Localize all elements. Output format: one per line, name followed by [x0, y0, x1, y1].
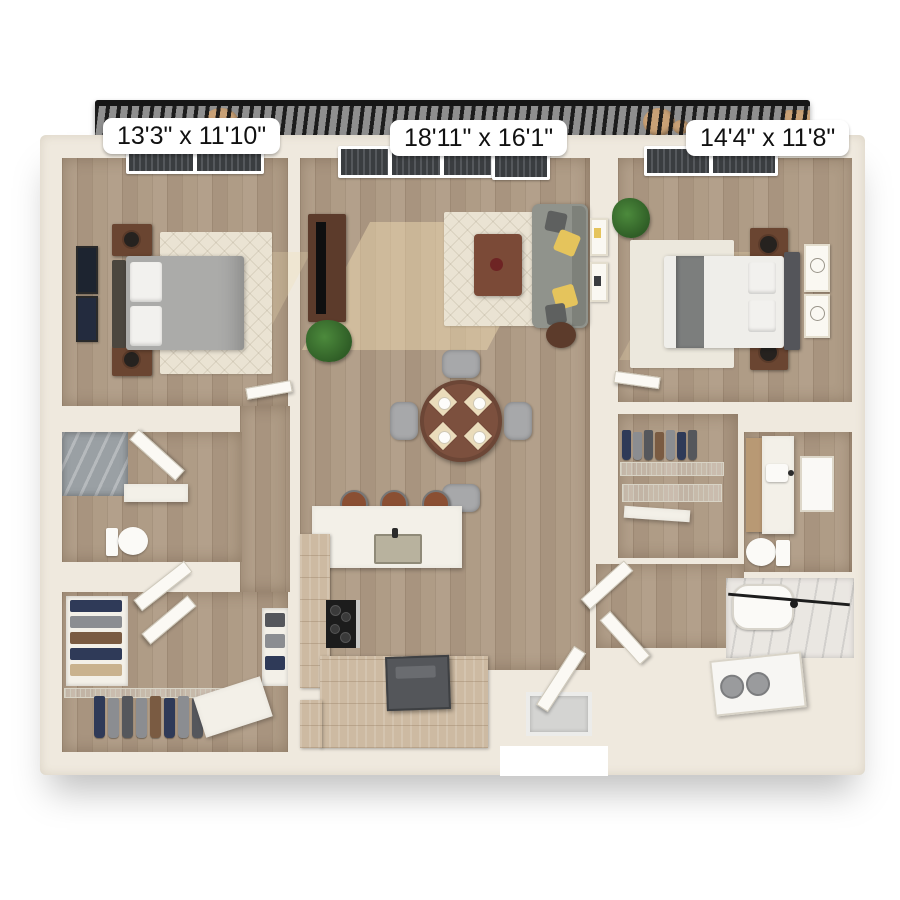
shower [62, 432, 128, 496]
wire-shelf [620, 462, 724, 476]
bathroom2-sink [766, 464, 788, 482]
side-table [546, 322, 576, 348]
wall-art-icon [590, 262, 608, 302]
plant-icon [306, 320, 352, 362]
washer-dryer [709, 651, 806, 716]
pillow [130, 262, 162, 302]
bathroom2-vanity-cabinet [746, 438, 762, 532]
wall-art-icon [76, 246, 98, 294]
wall-art-icon [804, 244, 830, 292]
floor-hall-1 [240, 406, 290, 592]
wire-shelf [622, 484, 722, 502]
label-bedroom-2-dimensions: 14'4" x 11'8" [686, 120, 849, 156]
toilet [746, 538, 776, 566]
entry-recess [500, 746, 608, 776]
wall-art-icon [590, 218, 608, 256]
toilet-tank [106, 528, 118, 556]
lamp-icon [124, 352, 139, 367]
plant-icon [612, 198, 650, 238]
toilet [118, 527, 148, 555]
pillow [130, 306, 162, 346]
lamp-icon [124, 232, 139, 247]
tub-fixture-icon [790, 600, 798, 608]
dining-table [420, 380, 502, 462]
plate-icon [438, 431, 451, 444]
base-cabinets [300, 700, 322, 748]
kitchen-sink [374, 534, 422, 564]
closet1-shelves [66, 596, 128, 686]
vase-icon [490, 258, 503, 271]
cooktop [326, 600, 360, 648]
mirror-niche [800, 456, 834, 512]
refrigerator [385, 655, 451, 711]
pillow [748, 300, 776, 332]
toilet-tank [776, 540, 790, 566]
lamp-icon [760, 236, 777, 253]
plate-icon [473, 397, 486, 410]
bed2-headboard [784, 252, 800, 350]
tv-console [308, 214, 346, 322]
dining-chair [390, 402, 418, 440]
wall-art-icon [804, 294, 830, 338]
dining-chair [442, 350, 480, 378]
tv-icon [316, 222, 326, 314]
plate-icon [438, 397, 451, 410]
bathroom1-vanity [124, 484, 188, 502]
label-bedroom-1-dimensions: 13'3" x 11'10" [103, 118, 280, 154]
faucet-icon [788, 470, 794, 476]
label-living-dimensions: 18'11" x 16'1" [390, 120, 567, 156]
bed2-throw-blanket [676, 256, 704, 348]
sofa-back-cushion [572, 206, 586, 326]
floorplan-canvas: 13'3" x 11'10" 18'11" x 16'1" 14'4" x 11… [0, 0, 900, 900]
faucet-icon [392, 528, 398, 538]
bed1-headboard [112, 260, 126, 348]
dining-chair [504, 402, 532, 440]
plate-icon [473, 431, 486, 444]
entry-mat [526, 692, 592, 736]
bathroom2-counter [762, 436, 794, 534]
pillow [748, 262, 776, 294]
wall-art-icon [76, 296, 98, 342]
bathtub [732, 584, 794, 630]
closet1-side-shelves [262, 608, 288, 686]
